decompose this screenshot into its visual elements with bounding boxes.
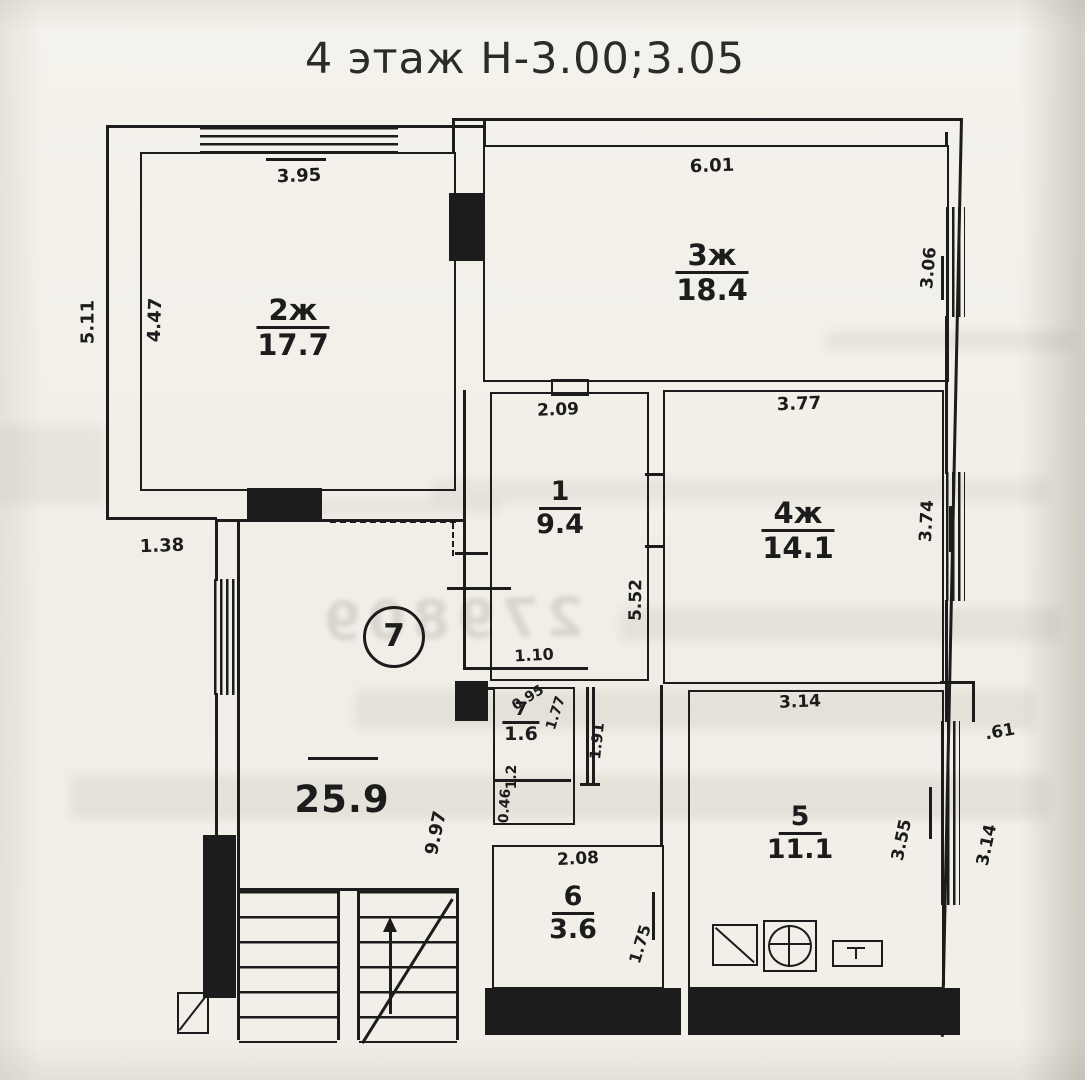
room4-area: 14.1	[761, 533, 834, 563]
room3-door-leaf	[551, 379, 589, 396]
sink-fixture	[712, 924, 758, 966]
room6-number: 6	[552, 883, 595, 915]
room5-number: 5	[779, 803, 822, 835]
dim-room2-width: 3.95	[276, 165, 321, 188]
room7-area: 1.6	[502, 725, 539, 745]
room7-number: 7	[502, 700, 539, 724]
room1-number: 1	[539, 478, 582, 510]
boiler-t-stem	[855, 947, 857, 959]
bearing-wall-below-room2	[247, 488, 322, 521]
room7-step-line	[463, 667, 588, 670]
room1-room4-jamb-b	[645, 545, 664, 548]
room1-label: 19.4	[536, 478, 584, 539]
dim-room6-width: 2.08	[557, 848, 600, 870]
hall-dashed-line-h	[330, 521, 456, 523]
stair-up-arrow-head	[383, 917, 397, 932]
sink-diagonal	[715, 927, 755, 964]
stair-flight-left	[239, 891, 337, 1043]
room3-number: 3ж	[675, 240, 748, 274]
inner-right-wall-b	[945, 316, 948, 474]
bearing-wall-bottom-left	[485, 988, 681, 1035]
room4-window	[946, 472, 965, 601]
room5-label: 511.1	[767, 803, 834, 864]
hall-area-line	[308, 757, 378, 760]
room3-label: 3ж18.4	[675, 240, 748, 305]
room2-label: 2ж17.7	[256, 295, 329, 360]
hall-niche-line	[455, 552, 488, 555]
show-through-streak	[0, 425, 105, 505]
hall-wall-left-outer-lower	[215, 693, 218, 837]
stair-stringer-a	[337, 888, 340, 1040]
hall-dashed-line-v	[452, 523, 454, 556]
room3-window	[946, 207, 965, 317]
room4-label: 4ж14.1	[761, 498, 834, 563]
dim-hall-height: 9.97	[421, 809, 451, 857]
room1-door-tick	[447, 587, 511, 590]
dim-room3-width: 6.01	[689, 155, 734, 178]
room1-area: 9.4	[536, 511, 584, 539]
unit-number-badge: 7	[363, 606, 425, 668]
stair-shaft-box	[177, 992, 209, 1034]
dim-wall-notch: .61	[983, 720, 1016, 745]
room3-area: 18.4	[675, 275, 748, 305]
dim-room4-width: 3.77	[776, 393, 821, 416]
dim-room1-width: 2.09	[537, 399, 580, 420]
wall-notch-h	[940, 681, 975, 684]
dim-left-step: 1.38	[139, 535, 184, 558]
room5-area: 11.1	[767, 836, 834, 864]
dim-room2-height: 4.47	[144, 297, 167, 342]
plan-title: 4 этаж Н-3.00;3.05	[0, 34, 1050, 84]
dim-niche-height: 0.46	[496, 788, 514, 824]
room6-area: 3.6	[549, 916, 597, 944]
bearing-wall-stairs	[203, 835, 236, 998]
unit-number: 7	[383, 618, 405, 654]
inner-right-wall-c	[945, 600, 948, 722]
inner-right-wall-d	[942, 905, 945, 985]
bearing-wall-room2-room3	[449, 193, 485, 261]
room1-left-wall-outer	[463, 390, 466, 670]
scanned-floor-plan-page: 4 этаж Н-3.00;3.05 279809	[0, 0, 1085, 1080]
dim-room4-window: 3.74	[916, 500, 938, 543]
bearing-wall-bottom-right	[688, 988, 960, 1035]
stair-edge-right	[456, 888, 459, 1040]
room7-wall-tick	[580, 783, 600, 786]
inner-right-wall-a	[945, 132, 948, 147]
room2-window	[200, 127, 398, 153]
dimline-room5	[929, 787, 932, 839]
room2-area: 17.7	[256, 330, 329, 360]
show-through-streak	[300, 498, 500, 516]
room7-label: 71.6	[502, 700, 539, 745]
room6-label: 63.6	[549, 883, 597, 944]
hall-wall-left-outer-upper	[215, 519, 218, 581]
stair-shaft-diagonal	[179, 995, 208, 1031]
outer-step-line	[106, 517, 217, 520]
wall-room6-room5	[660, 685, 663, 847]
hall-left-window	[214, 579, 238, 695]
boiler-fixture	[832, 940, 883, 967]
room2-number: 2ж	[256, 295, 329, 329]
wall-room2-room3-stub-a	[452, 120, 455, 154]
stair-stringer-b	[357, 888, 360, 1040]
dimline-room2	[266, 158, 326, 161]
dim-niche-width: 1.2	[504, 765, 520, 790]
bearing-wall-room7	[455, 681, 488, 721]
dim-room1-wall-height: 5.52	[626, 579, 647, 621]
dim-outer-left-height: 5.11	[78, 300, 99, 344]
stove-fixture	[763, 920, 817, 972]
hall-area-label: 25.9	[294, 778, 389, 821]
wall-room2-room3-stub-b	[483, 118, 486, 147]
outer-wall-top-right	[452, 118, 962, 121]
dim-room5-outer-height: 3.14	[973, 822, 1001, 867]
outer-wall-left	[106, 125, 109, 520]
dim-room7-step: 1.10	[514, 644, 554, 665]
dimline-room3-window	[941, 256, 944, 300]
room5-window	[941, 721, 960, 905]
dim-room3-window: 3.06	[917, 246, 941, 290]
dim-room7-wall: 1.91	[586, 722, 608, 761]
wall-notch-v	[972, 681, 975, 722]
room1-room4-jamb-a	[645, 473, 664, 476]
room4-number: 4ж	[761, 498, 834, 532]
dim-room5-width: 3.14	[779, 691, 822, 712]
stove-cross-v	[788, 925, 790, 967]
